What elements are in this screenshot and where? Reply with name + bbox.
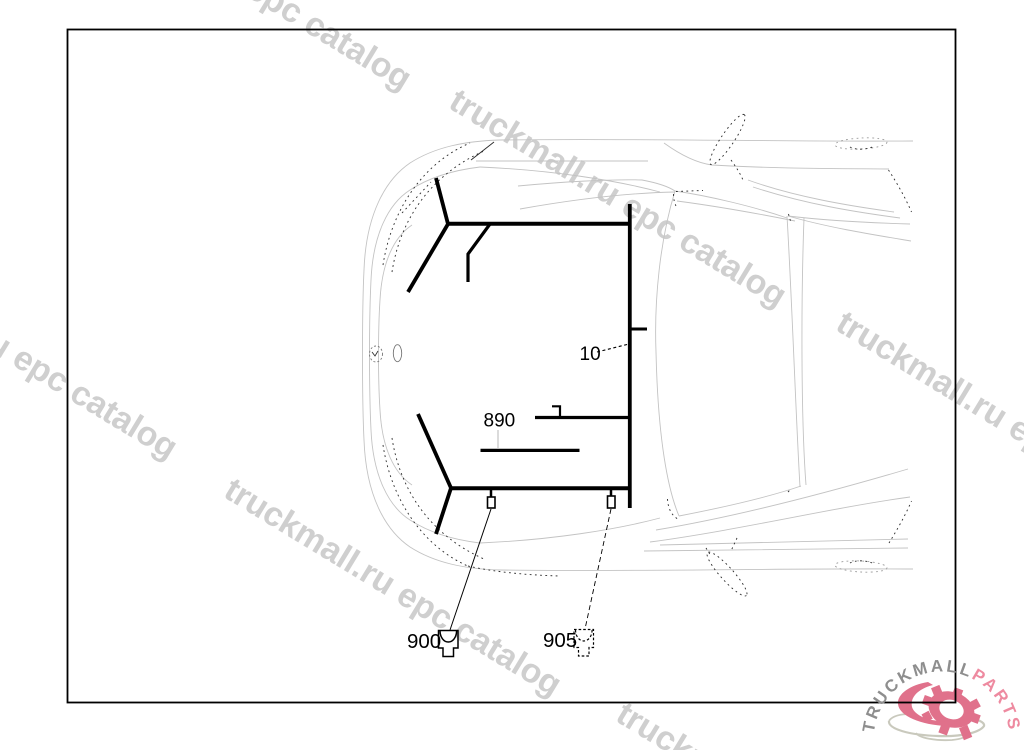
svg-text:905: 905 — [543, 629, 577, 652]
svg-text:890: 890 — [484, 411, 516, 432]
svg-text:900: 900 — [407, 630, 441, 653]
svg-text:10: 10 — [580, 344, 601, 365]
